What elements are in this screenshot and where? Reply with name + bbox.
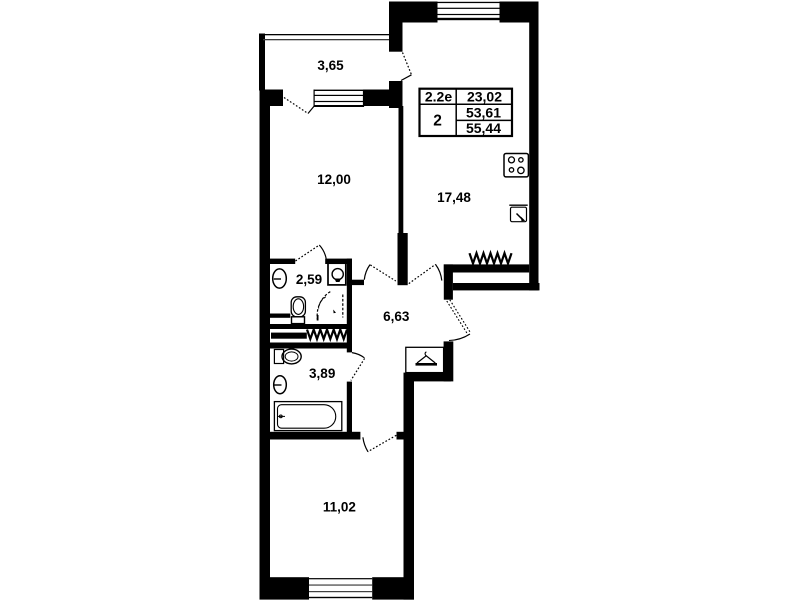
svg-text:2: 2 bbox=[433, 113, 442, 130]
svg-text:11,02: 11,02 bbox=[323, 500, 356, 515]
svg-text:17,48: 17,48 bbox=[437, 190, 471, 205]
svg-text:2.2е: 2.2е bbox=[425, 89, 452, 105]
svg-text:2,59: 2,59 bbox=[296, 272, 322, 287]
svg-text:3,89: 3,89 bbox=[309, 366, 335, 381]
svg-text:53,61: 53,61 bbox=[466, 104, 501, 120]
svg-text:55,44: 55,44 bbox=[466, 120, 501, 136]
svg-text:12,00: 12,00 bbox=[317, 172, 351, 187]
svg-text:3,65: 3,65 bbox=[317, 58, 344, 73]
svg-text:23,02: 23,02 bbox=[467, 89, 502, 105]
svg-text:6,63: 6,63 bbox=[383, 309, 410, 324]
